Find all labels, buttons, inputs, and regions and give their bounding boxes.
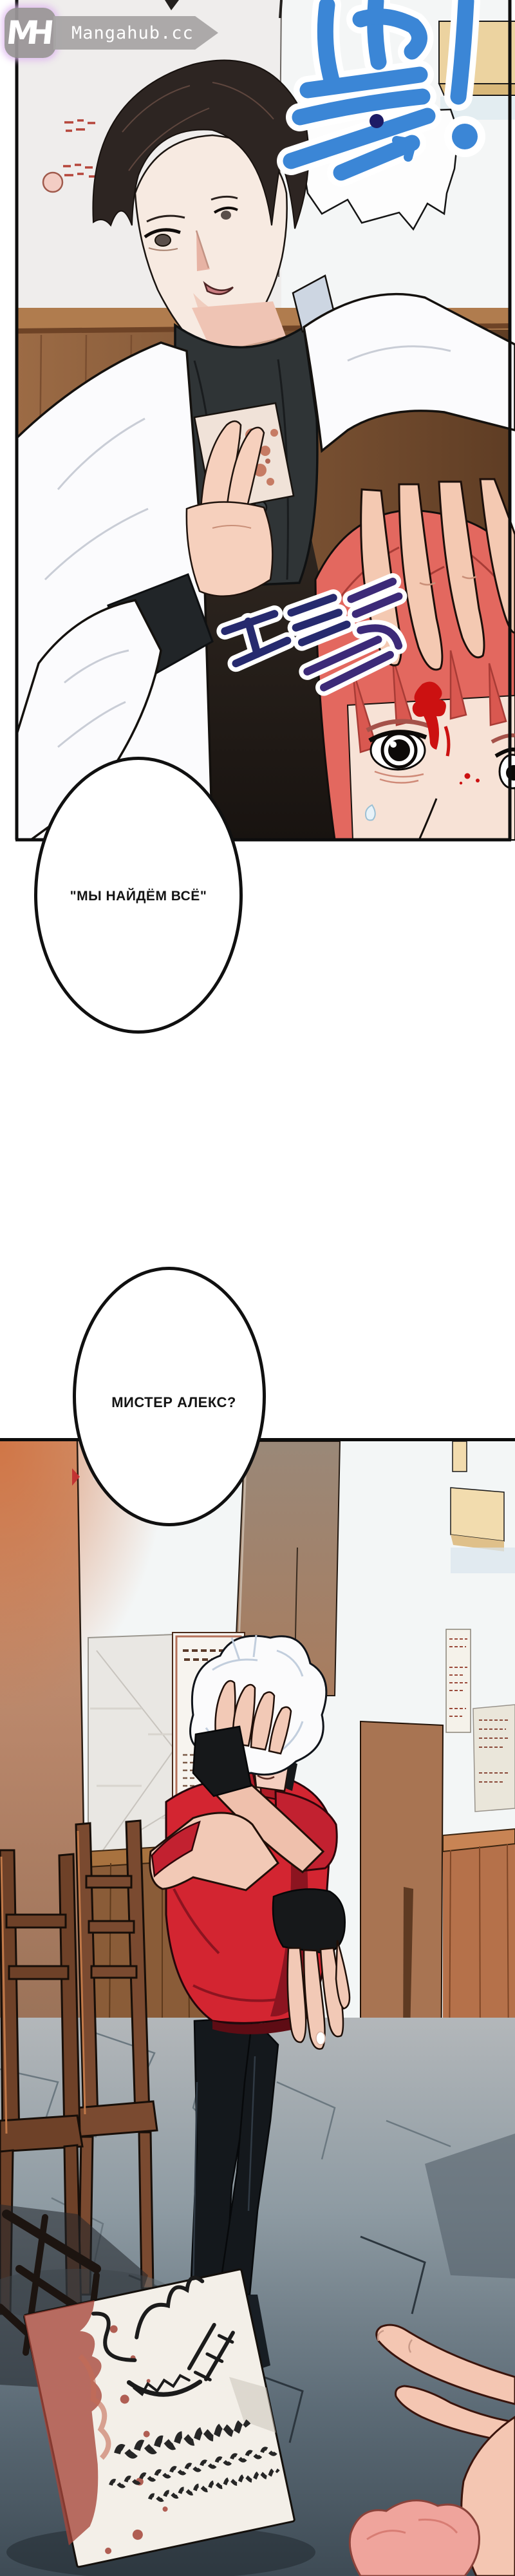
wall-poster-right-2 bbox=[473, 1705, 515, 1812]
site-logo-ribbon[interactable]: Mangahub.cc bbox=[53, 16, 218, 50]
speech-bubble-question: МИСТЕР АЛЕКС? bbox=[73, 1267, 266, 1526]
speech-bubble-text: МИСТЕР АЛЕКС? bbox=[111, 1394, 236, 1411]
panel-clinic-scene bbox=[0, 0, 515, 844]
site-name: Mangahub.cc bbox=[53, 23, 194, 43]
sfx-blue-graffiti bbox=[291, 1, 485, 173]
speech-bubble-text: "МЫ НАЙДЁМ ВСЁ" bbox=[70, 889, 207, 904]
site-logo[interactable]: MH Mangahub.cc bbox=[5, 8, 218, 58]
speech-bubble-quote: "МЫ НАЙДЁМ ВСЁ" bbox=[34, 757, 243, 1034]
panel-bar-scene bbox=[0, 1438, 515, 2576]
logo-monogram-h: H bbox=[26, 17, 56, 49]
manga-reader-page: "МЫ НАЙДЁМ ВСЁ" bbox=[0, 0, 515, 2576]
fingerless-glove bbox=[273, 1889, 345, 1953]
wall-poster-right-1 bbox=[446, 1629, 471, 1732]
site-logo-badge[interactable]: MH bbox=[5, 8, 56, 58]
